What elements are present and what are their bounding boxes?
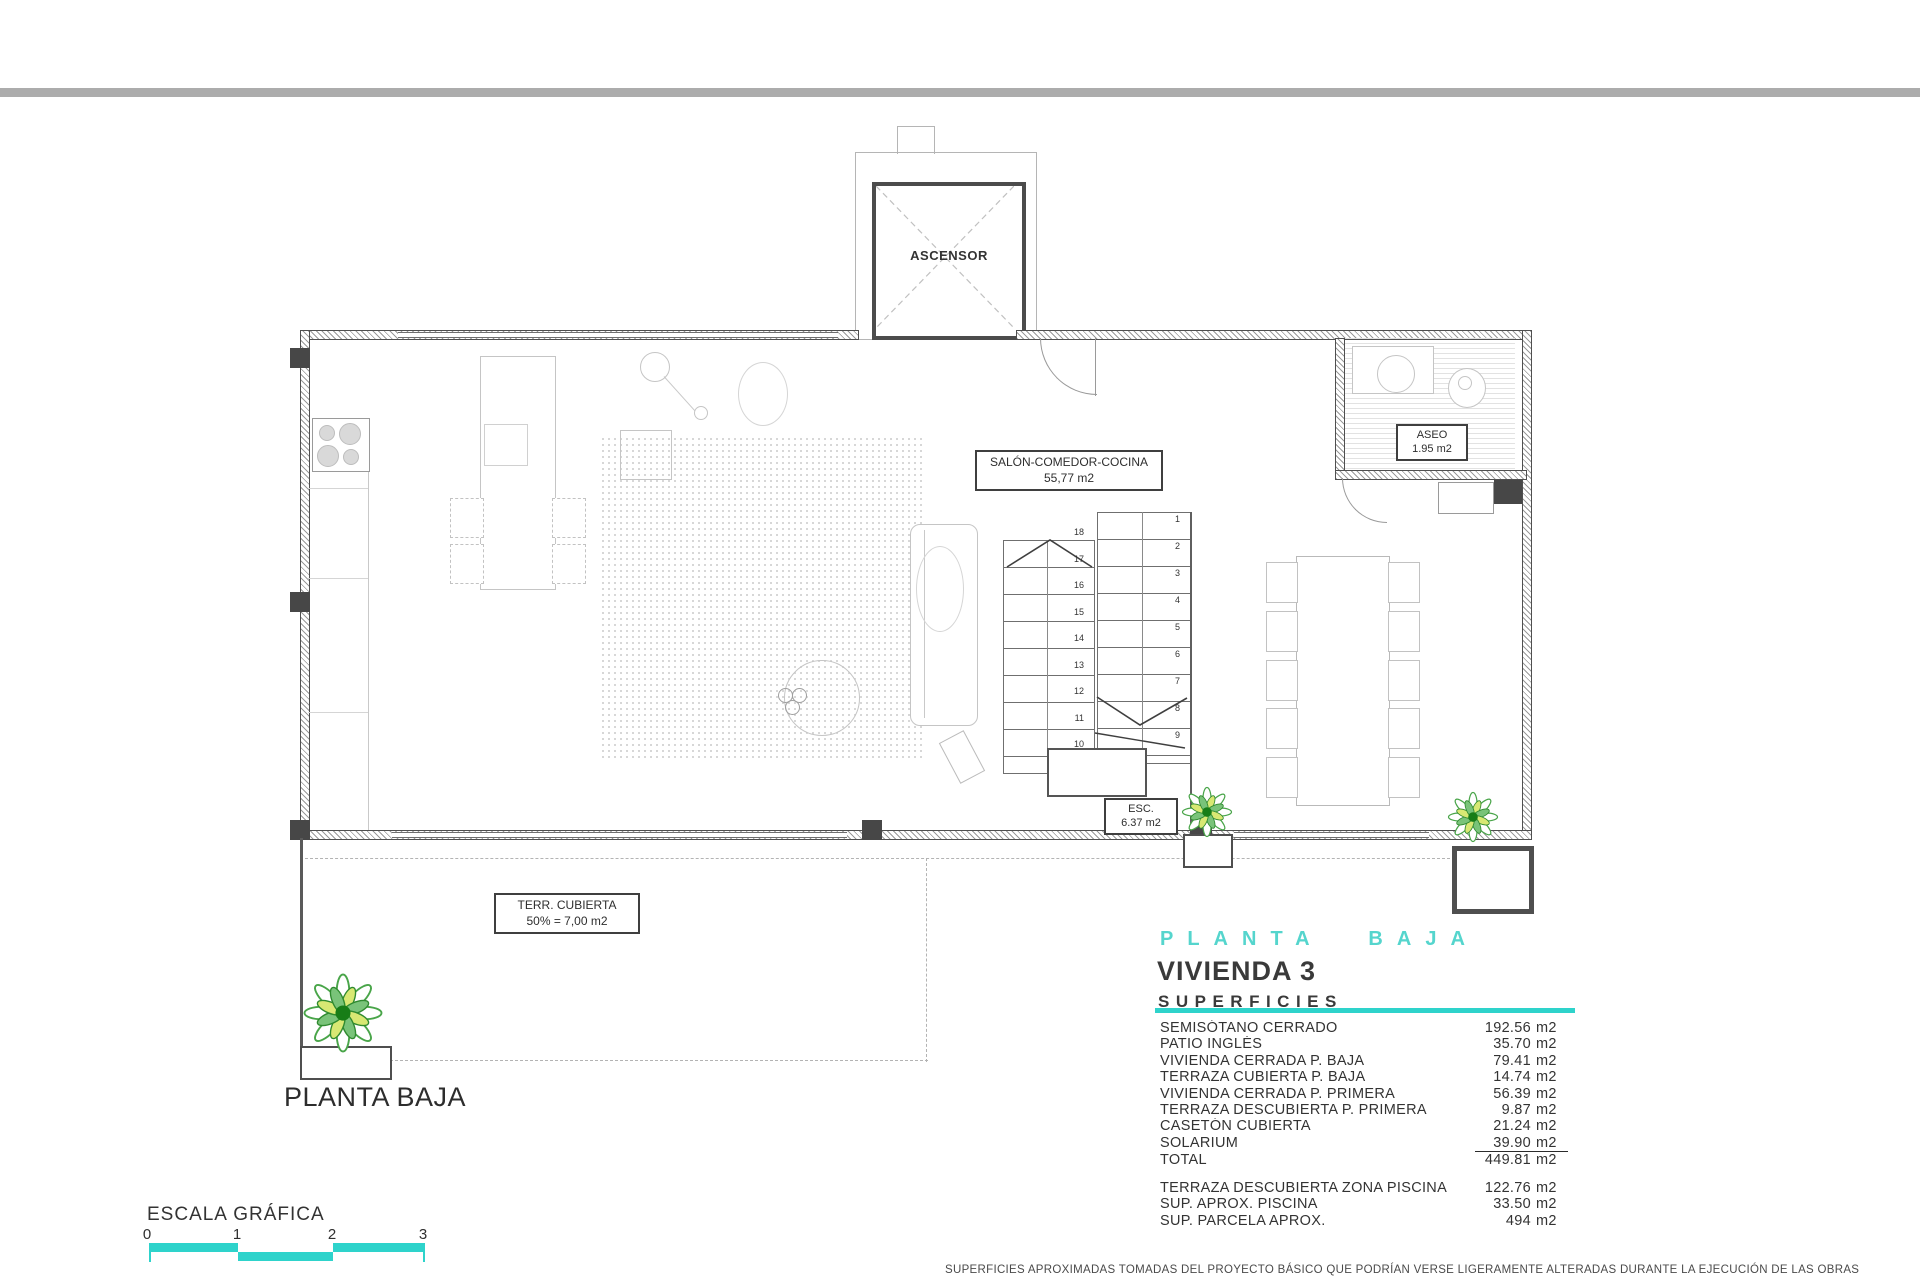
terraza-name: TERR. CUBIERTA xyxy=(518,898,617,912)
superficies-row-label: CASETÓN CUBIERTA xyxy=(1160,1118,1475,1134)
chair xyxy=(450,544,484,584)
summary-divider xyxy=(1155,1008,1575,1013)
armchair xyxy=(620,430,672,480)
entry-door-arc xyxy=(1040,338,1097,395)
superficies-row-value-unit: 33.50m2 xyxy=(1475,1196,1568,1212)
scale-segment xyxy=(333,1243,424,1252)
superficies-row: SUP. PARCELA APROX.494m2 xyxy=(1160,1213,1568,1229)
salon-area: 55,77 m2 xyxy=(983,471,1155,487)
superficies-row-label: TERRAZA CUBIERTA P. BAJA xyxy=(1160,1069,1475,1085)
pillar xyxy=(1494,478,1522,504)
bathroom-step xyxy=(1438,482,1494,514)
scale-tick: 3 xyxy=(417,1226,429,1243)
superficies-row: SOLARIUM39.90m2 xyxy=(1160,1135,1568,1152)
chair xyxy=(1388,660,1420,701)
superficies-row-value-unit: 21.24m2 xyxy=(1475,1118,1568,1134)
superficies-row: CASETÓN CUBIERTA21.24m2 xyxy=(1160,1118,1568,1134)
chair xyxy=(1266,708,1298,749)
burner-icon xyxy=(339,423,361,445)
superficies-row-value: 39.90 xyxy=(1475,1135,1531,1151)
scale-segment xyxy=(238,1252,333,1261)
summary-floor-title: PLANTA BAJA xyxy=(1160,928,1479,951)
chair xyxy=(1388,611,1420,652)
scale-tick: 1 xyxy=(231,1226,243,1243)
stair-tread-number: 2 xyxy=(1162,541,1180,551)
terraza-area: 50% = 7,00 m2 xyxy=(502,914,632,930)
superficies-row-unit: m2 xyxy=(1531,1152,1568,1168)
stair-tread-number: 12 xyxy=(1066,686,1084,696)
superficies-row-value: 122.76 xyxy=(1475,1180,1531,1196)
chair xyxy=(1266,660,1298,701)
superficies-row-value-unit: 9.87m2 xyxy=(1475,1102,1568,1118)
stair-tread-number: 7 xyxy=(1162,676,1180,686)
superficies-row-value: 79.41 xyxy=(1475,1053,1531,1069)
person-figure xyxy=(738,362,788,426)
superficies-row-value: 9.87 xyxy=(1475,1102,1531,1118)
superficies-row-value-unit: 79.41m2 xyxy=(1475,1053,1568,1069)
chair xyxy=(1388,562,1420,603)
bathroom-left-wall xyxy=(1335,338,1345,480)
superficies-extra-table: TERRAZA DESCUBIERTA ZONA PISCINA122.76m2… xyxy=(1160,1180,1568,1229)
superficies-row-label: PATIO INGLÉS xyxy=(1160,1036,1475,1052)
elevator-notch xyxy=(897,126,935,154)
superficies-row-value-unit: 56.39m2 xyxy=(1475,1086,1568,1102)
superficies-row-value: 449.81 xyxy=(1475,1152,1531,1168)
stair-tread-number: 11 xyxy=(1066,713,1084,723)
superficies-row-label: SUP. PARCELA APROX. xyxy=(1160,1213,1475,1229)
scale-end-tick xyxy=(423,1243,425,1262)
top-window xyxy=(398,332,838,338)
superficies-row: TERRAZA DESCUBIERTA P. PRIMERA9.87m2 xyxy=(1160,1102,1568,1118)
chair xyxy=(450,498,484,538)
superficies-row-value: 21.24 xyxy=(1475,1118,1531,1134)
superficies-row-unit: m2 xyxy=(1531,1086,1568,1102)
superficies-row-label: TOTAL xyxy=(1160,1152,1475,1168)
superficies-row-unit: m2 xyxy=(1531,1053,1568,1069)
bottom-window-right xyxy=(1234,832,1429,838)
superficies-row-value: 14.74 xyxy=(1475,1069,1531,1085)
superficies-row-unit: m2 xyxy=(1531,1036,1568,1052)
stove xyxy=(312,418,370,472)
chair xyxy=(1388,757,1420,798)
stair-tread-number: 18 xyxy=(1066,527,1084,537)
superficies-row-value-unit: 122.76m2 xyxy=(1475,1180,1568,1196)
superficies-row-value-unit: 14.74m2 xyxy=(1475,1069,1568,1085)
superficies-row-value-unit: 35.70m2 xyxy=(1475,1036,1568,1052)
scale-bar: ESCALA GRÁFICA 0 1 2 3 xyxy=(140,1204,460,1274)
stair-tread-number: 13 xyxy=(1066,660,1084,670)
floor-lamp-head xyxy=(694,406,708,420)
superficies-row: PATIO INGLÉS35.70m2 xyxy=(1160,1036,1568,1052)
superficies-row-value-unit: 192.56m2 xyxy=(1475,1020,1568,1036)
disclaimer-text: SUPERFICIES APROXIMADAS TOMADAS DEL PROY… xyxy=(945,1264,1859,1276)
floor-plan: ASCENSOR ASEO 1.95 m2 xyxy=(0,0,1920,1280)
burner-icon xyxy=(317,445,339,467)
chair xyxy=(552,498,586,538)
kitchen-table-mat xyxy=(484,424,528,466)
pillar xyxy=(290,592,310,612)
superficies-row-value: 56.39 xyxy=(1475,1086,1531,1102)
stair-tread-number: 5 xyxy=(1162,622,1180,632)
washbasin-drain xyxy=(1458,376,1472,390)
superficies-row-value: 494 xyxy=(1475,1213,1531,1229)
kitchen-counter-edge xyxy=(368,418,369,830)
elevator-label: ASCENSOR xyxy=(876,248,1022,263)
elevator-room: ASCENSOR xyxy=(872,182,1026,340)
superficies-row-value: 35.70 xyxy=(1475,1036,1531,1052)
superficies-row-value: 192.56 xyxy=(1475,1020,1531,1036)
superficies-row-label: TERRAZA DESCUBIERTA ZONA PISCINA xyxy=(1160,1180,1475,1196)
chair xyxy=(1388,708,1420,749)
esc-name: ESC. xyxy=(1128,803,1154,815)
superficies-row-unit: m2 xyxy=(1531,1180,1568,1196)
stair-tread-number: 17 xyxy=(1066,554,1084,564)
superficies-row-label: SOLARIUM xyxy=(1160,1135,1475,1152)
superficies-row-unit: m2 xyxy=(1531,1118,1568,1134)
kitchen-counter-divider xyxy=(308,578,368,579)
scale-tick: 2 xyxy=(326,1226,338,1243)
kitchen-counter-divider xyxy=(308,488,368,489)
burner-icon xyxy=(343,449,359,465)
superficies-row-unit: m2 xyxy=(1531,1196,1568,1212)
esc-area: 6.37 m2 xyxy=(1110,816,1172,830)
stair-tread-number: 1 xyxy=(1162,514,1180,524)
stair-tread-number: 16 xyxy=(1066,580,1084,590)
superficies-row-value-unit: 494m2 xyxy=(1475,1213,1568,1229)
esc-label: ESC. 6.37 m2 xyxy=(1104,798,1178,835)
scale-end-tick xyxy=(149,1243,151,1262)
stair-tread-number: 8 xyxy=(1162,703,1180,713)
chair xyxy=(1266,562,1298,603)
terraza-label: TERR. CUBIERTA 50% = 7,00 m2 xyxy=(494,893,640,934)
aseo-area: 1.95 m2 xyxy=(1402,442,1462,456)
stair-tread-number: 4 xyxy=(1162,595,1180,605)
pillar xyxy=(290,348,310,368)
burner-icon xyxy=(319,425,335,441)
plant-icon xyxy=(1445,789,1501,845)
right-wall xyxy=(1522,330,1532,840)
scale-title: ESCALA GRÁFICA xyxy=(147,1204,325,1226)
salon-label: SALÓN-COMEDOR-COCINA 55,77 m2 xyxy=(975,450,1163,491)
superficies-row: SEMISÓTANO CERRADO192.56m2 xyxy=(1160,1020,1568,1036)
superficies-row-unit: m2 xyxy=(1531,1069,1568,1085)
superficies-row: VIVIENDA CERRADA P. BAJA79.41m2 xyxy=(1160,1053,1568,1069)
pillar xyxy=(862,820,882,840)
stair-tread-number: 14 xyxy=(1066,633,1084,643)
entry-door-leaf xyxy=(1095,338,1096,396)
superficies-row-label: SUP. APROX. PISCINA xyxy=(1160,1196,1475,1212)
pillar xyxy=(290,820,310,840)
superficies-row-value: 33.50 xyxy=(1475,1196,1531,1212)
summary-unit-title: VIVIENDA 3 xyxy=(1157,956,1316,987)
stair-tread-number: 6 xyxy=(1162,649,1180,659)
terrace-dashed-right xyxy=(926,858,927,1062)
superficies-row-value-unit: 39.90m2 xyxy=(1475,1135,1568,1152)
floor-lamp-stem xyxy=(664,376,696,411)
scale-tick: 0 xyxy=(141,1226,153,1243)
toilet-icon xyxy=(1377,355,1415,393)
dining-table xyxy=(1296,556,1390,806)
rug xyxy=(600,436,926,760)
superficies-row-label: VIVIENDA CERRADA P. BAJA xyxy=(1160,1053,1475,1069)
superficies-row: SUP. APROX. PISCINA33.50m2 xyxy=(1160,1196,1568,1212)
scale-segment xyxy=(150,1243,238,1252)
superficies-row-unit: m2 xyxy=(1531,1213,1568,1229)
terrace-dashed-bottom xyxy=(300,1060,928,1061)
aseo-label: ASEO 1.95 m2 xyxy=(1396,424,1468,461)
superficies-row-label: VIVIENDA CERRADA P. PRIMERA xyxy=(1160,1086,1475,1102)
kitchen-table xyxy=(480,356,556,590)
salon-name: SALÓN-COMEDOR-COCINA xyxy=(990,455,1148,469)
superficies-row-unit: m2 xyxy=(1531,1135,1568,1151)
superficies-row-unit: m2 xyxy=(1531,1102,1568,1118)
superficies-row-label: TERRAZA DESCUBIERTA P. PRIMERA xyxy=(1160,1102,1475,1118)
superficies-row-label: SEMISÓTANO CERRADO xyxy=(1160,1020,1475,1036)
person-figure xyxy=(916,546,964,632)
superficies-table: SEMISÓTANO CERRADO192.56m2PATIO INGLÉS35… xyxy=(1160,1020,1568,1169)
stair-tread-number: 15 xyxy=(1066,607,1084,617)
chair xyxy=(1266,611,1298,652)
kitchen-counter-divider xyxy=(308,712,368,713)
superficies-row: TERRAZA CUBIERTA P. BAJA14.74m2 xyxy=(1160,1069,1568,1085)
chair xyxy=(1266,757,1298,798)
chair xyxy=(552,544,586,584)
bathroom-door-arc xyxy=(1342,478,1387,523)
chaise xyxy=(939,730,985,784)
left-wall xyxy=(300,330,310,840)
stool-icon xyxy=(785,700,800,715)
plant-icon xyxy=(1179,784,1235,840)
superficies-row-unit: m2 xyxy=(1531,1020,1568,1036)
plan-caption: PLANTA BAJA xyxy=(284,1082,466,1113)
superficies-row-value-unit: 449.81m2 xyxy=(1475,1152,1568,1168)
roof-overhang-dashed xyxy=(300,858,1450,859)
bottom-window-left xyxy=(392,832,847,838)
superficies-row: VIVIENDA CERRADA P. PRIMERA56.39m2 xyxy=(1160,1086,1568,1102)
superficies-row: TOTAL449.81m2 xyxy=(1160,1152,1568,1168)
stair-tread-number: 9 xyxy=(1162,730,1180,740)
stair-tread-number: 3 xyxy=(1162,568,1180,578)
stair-tread-number: 10 xyxy=(1066,739,1084,749)
plant-icon xyxy=(299,969,387,1057)
aseo-name: ASEO xyxy=(1417,429,1448,441)
superficies-row: TERRAZA DESCUBIERTA ZONA PISCINA122.76m2 xyxy=(1160,1180,1568,1196)
entry-steps xyxy=(1452,846,1534,914)
